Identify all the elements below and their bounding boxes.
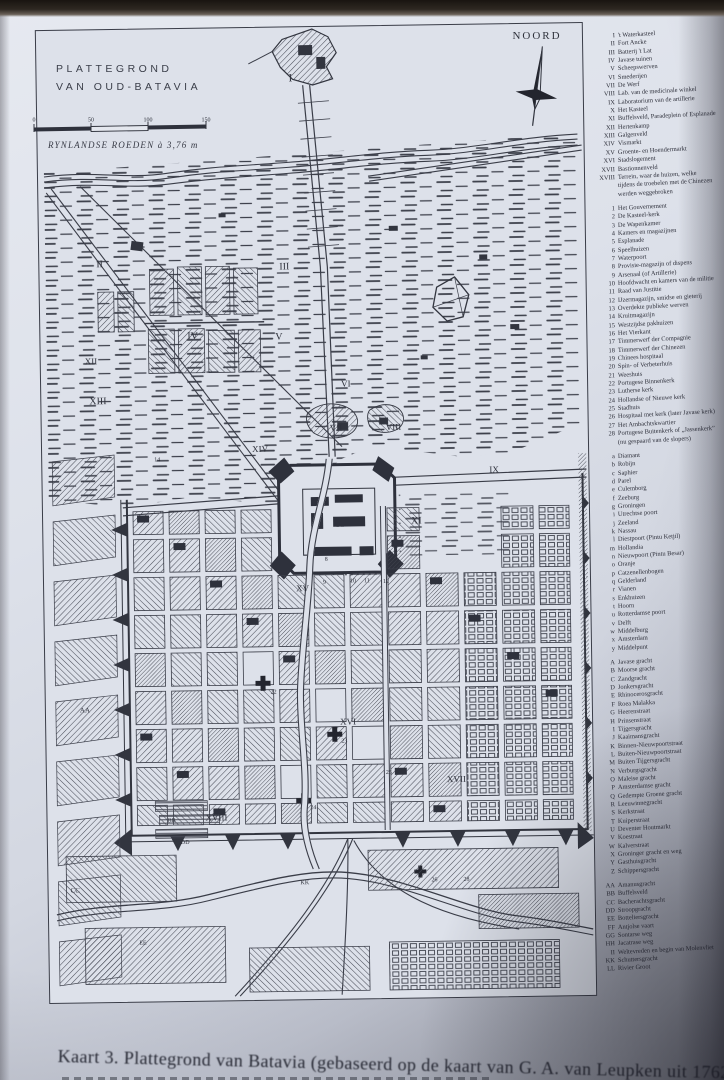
map-label-X: X — [336, 518, 344, 530]
page-left-shadow — [0, 0, 10, 1080]
scale-tick: 0 — [33, 118, 36, 124]
compass-needle — [512, 44, 563, 129]
legend-value: Middelpunt — [618, 643, 648, 653]
map-label-10: 10 — [350, 578, 356, 584]
sea-fort — [248, 29, 337, 86]
map-label-24: 24 — [310, 805, 316, 811]
map-label-IX: IX — [489, 464, 499, 474]
compass-rose: NOORD — [505, 26, 569, 144]
map-label-14: 14 — [154, 457, 160, 463]
map-label-23: 23 — [341, 739, 347, 745]
map-label-8: 8 — [325, 557, 328, 563]
map-label-9: 9 — [323, 580, 326, 586]
scale-caption: RYNLANDSE ROEDEN à 3,76 m — [48, 140, 199, 150]
map-label-XVIII: XVIII — [205, 812, 227, 822]
map-label-XIV: XIV — [252, 444, 269, 454]
map-label-DD: DD — [181, 840, 190, 846]
map-label-VI: VI — [341, 378, 351, 388]
map-label-XVI: XVI — [340, 716, 356, 726]
scale-tick: 100 — [144, 118, 153, 124]
map-label-XV: XV — [296, 583, 310, 593]
map-label-BB: BB — [168, 818, 176, 824]
map-title-line2: VAN OUD-BATAVIA — [56, 78, 201, 96]
map-label-CC: CC — [71, 887, 81, 895]
bottom-right-shadow — [384, 660, 724, 1080]
map-label-IV: IV — [187, 331, 198, 342]
photo-top-edge — [0, 0, 724, 17]
map-label-III: III — [279, 261, 289, 272]
map-label-V: V — [275, 331, 283, 342]
scale-tick: 50 — [88, 118, 94, 124]
map-label-XI: XI — [411, 515, 422, 526]
compass-label: NOORD — [512, 30, 561, 42]
map-title-line1: PLATTEGROND — [56, 60, 201, 78]
map-label-XII: XII — [85, 356, 98, 366]
map-label-EE: EE — [139, 941, 147, 947]
book-page-photo: IIIIIIIVVVIVIIVIIIIXXXIXIIXIIIXIVXVXVIXV… — [0, 0, 724, 1080]
map-label-VII: VII — [330, 423, 343, 433]
legend-value: Robijn — [618, 460, 636, 469]
map-label-II: II — [96, 259, 103, 270]
map-label-XIII: XIII — [89, 396, 106, 407]
scale-bar: 050100150 — [30, 116, 220, 160]
map-label-VIII: VIII — [386, 422, 402, 432]
scale-tick: 150 — [202, 118, 211, 124]
legend-key: y — [599, 645, 618, 654]
map-label-KK: KK — [300, 880, 309, 886]
map-title: PLATTEGROND VAN OUD-BATAVIA — [56, 60, 201, 96]
scale-tick-labels: 050100150 — [33, 118, 211, 124]
map-label-I: I — [288, 72, 292, 84]
map-label-12: 12 — [383, 579, 389, 585]
map-label-22: 22 — [271, 690, 277, 696]
map-label-AA: AA — [80, 706, 90, 714]
map-label-11: 11 — [364, 578, 370, 584]
